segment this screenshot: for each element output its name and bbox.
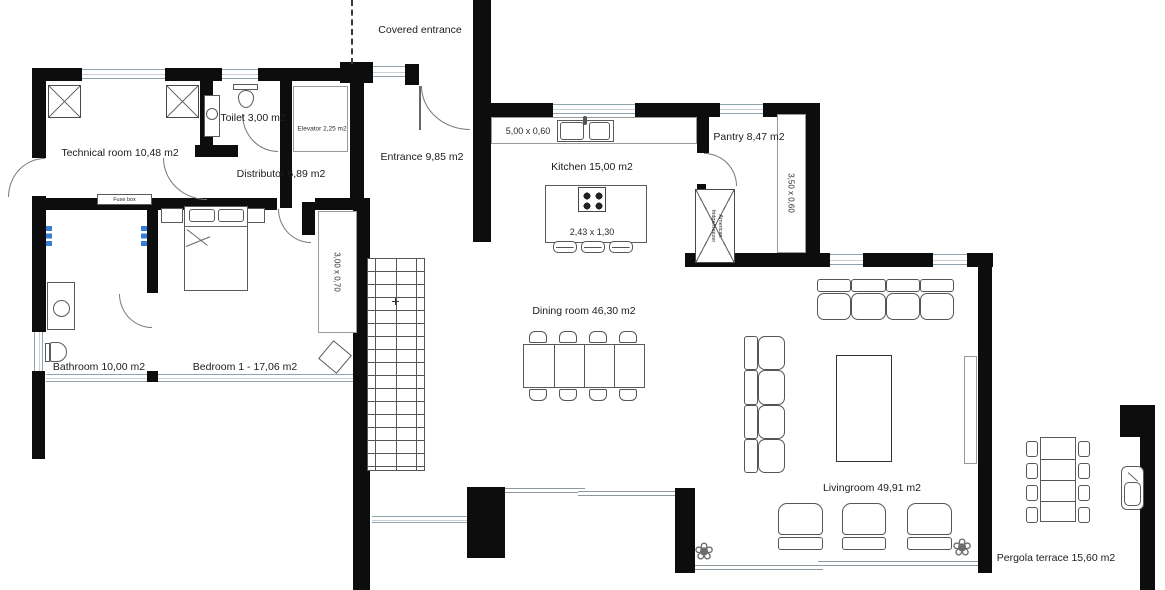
sofa-cushion: [744, 370, 758, 404]
wardrobe-dimension: 3,00 x 0,70: [333, 252, 342, 292]
pillow: [218, 209, 244, 222]
window: [830, 254, 863, 265]
window: [373, 66, 407, 77]
wall: [340, 62, 373, 83]
sofa-cushion: [817, 293, 851, 320]
toilet-icon: [238, 90, 254, 108]
door-arc: [119, 294, 152, 328]
sofa-cushion: [920, 279, 954, 292]
floor-plan: Fuse box 3,00 x 0,70 American fridge/fre…: [0, 0, 1165, 590]
nightstand: [245, 208, 265, 223]
sofa-cushion: [920, 293, 954, 320]
livingroom-label: Livingroom 49,91 m2: [823, 482, 921, 494]
pergola-chair: [1078, 485, 1090, 501]
sofa-cushion: [744, 439, 758, 473]
wall: [978, 253, 992, 573]
plant-icon: ❀: [694, 538, 714, 567]
pantry-label: Pantry 8,47 m2: [713, 131, 784, 143]
washing-machine-icon: [166, 85, 199, 118]
stove-icon: [578, 187, 606, 212]
dining-room-label: Dining room 46,30 m2: [532, 305, 635, 317]
wall: [491, 103, 553, 117]
fridge-label-line2: fridge/freezer: [709, 210, 716, 242]
pergola-chair: [1026, 463, 1038, 479]
window: [372, 516, 467, 523]
blanket-line: [185, 226, 247, 227]
sofa-cushion: [886, 279, 920, 292]
sofa-cushion: [758, 439, 785, 473]
sofa: [817, 279, 954, 320]
sink-bowl-icon: [53, 300, 70, 317]
wall: [806, 103, 820, 265]
dining-chair: [559, 389, 577, 401]
decor-square: [318, 340, 352, 374]
wall: [473, 0, 491, 242]
stairs-direction-mark: [395, 298, 396, 305]
elevator-label: Elevator 2,25 m2: [297, 126, 346, 133]
wall: [32, 196, 46, 332]
door-arc: [704, 153, 737, 186]
table-divider: [1041, 480, 1075, 481]
armchair-seat: [842, 537, 886, 550]
sink-basin-icon: [589, 122, 610, 140]
pergola-chair: [1078, 463, 1090, 479]
property-line: [351, 0, 353, 64]
sliding-door: [505, 488, 585, 493]
elevator-cab: [293, 86, 348, 152]
dining-chair: [589, 389, 607, 401]
wall: [863, 253, 933, 267]
pergola-chair: [1026, 507, 1038, 523]
window: [553, 104, 635, 114]
table-divider: [584, 345, 585, 387]
table-divider: [614, 345, 615, 387]
pantry-shelf-dimension: 3,50 x 0,60: [787, 173, 796, 213]
dining-chair: [589, 331, 607, 343]
fuse-box: Fuse box: [97, 194, 152, 205]
sink-bowl-icon: [206, 108, 218, 120]
dining-chair: [529, 331, 547, 343]
wall: [697, 103, 709, 153]
table-divider: [1041, 501, 1075, 502]
washing-machine-icon: [48, 85, 81, 118]
covered-entrance-label: Covered entrance: [378, 24, 461, 36]
pergola-chair: [1078, 507, 1090, 523]
window: [933, 254, 967, 265]
radiator: [46, 226, 52, 248]
pergola-chair: [1026, 441, 1038, 457]
pillow: [189, 209, 215, 222]
window: [34, 332, 43, 372]
wall: [147, 203, 158, 293]
entrance-label: Entrance 9,85 m2: [381, 151, 464, 163]
armchair-back: [778, 503, 823, 535]
wall: [315, 198, 353, 210]
dining-chair: [559, 331, 577, 343]
dining-chair: [619, 389, 637, 401]
wall: [32, 371, 45, 459]
armchair-seat: [778, 537, 823, 550]
window: [222, 69, 260, 79]
armchair: [907, 503, 952, 553]
fuse-box-label: Fuse box: [113, 197, 136, 203]
nightstand: [161, 208, 183, 223]
door-arc: [163, 158, 207, 200]
door-arc: [278, 209, 311, 243]
distributor-label: Distributor 6,89 m2: [237, 168, 326, 180]
sofa-cushion: [817, 279, 851, 292]
wall: [280, 80, 292, 208]
radiator: [141, 226, 147, 248]
stairs: [367, 258, 425, 471]
kitchen-counter-dimension: 5,00 x 0,60: [506, 126, 551, 136]
window: [158, 374, 353, 382]
toilet-label: Toilet 3,00 m2: [220, 112, 285, 124]
faucet-icon: [583, 116, 587, 125]
armchair-back: [842, 503, 886, 535]
door-arc: [421, 86, 470, 130]
sofa-cushion: [744, 336, 758, 370]
dining-table: [523, 344, 645, 388]
sofa-cushion: [744, 405, 758, 439]
sliding-door: [695, 565, 823, 570]
dining-chair: [529, 389, 547, 401]
kitchen-label: Kitchen 15,00 m2: [551, 161, 633, 173]
sofa: [744, 336, 785, 473]
fridge-label-line1: American: [716, 210, 723, 242]
tv-board: [964, 356, 977, 464]
pergola-terrace-label: Pergola terrace 15,60 m2: [997, 552, 1115, 564]
armchair-seat: [907, 537, 952, 550]
toilet-icon: [50, 342, 67, 362]
sink-basin-icon: [560, 122, 584, 140]
sofa-cushion: [851, 279, 885, 292]
armchair-back: [907, 503, 952, 535]
plant-icon: ❀: [952, 534, 972, 563]
wall: [32, 68, 46, 158]
pergola-table: [1040, 437, 1076, 522]
sliding-door: [578, 491, 675, 496]
sofa-seats: [758, 336, 785, 473]
sofa-cushion: [886, 293, 920, 320]
bbq-basin: [1124, 482, 1141, 506]
bathroom-label: Bathroom 10,00 m2: [53, 361, 145, 373]
dining-chair: [619, 331, 637, 343]
pergola-chair: [1078, 441, 1090, 457]
fridge-label: American fridge/freezer: [709, 210, 723, 242]
armchair: [842, 503, 886, 553]
bedroom-label: Bedroom 1 - 17,06 m2: [193, 361, 297, 373]
pergola-chair: [1026, 485, 1038, 501]
bar-stool: [581, 241, 605, 253]
door-arc: [8, 158, 45, 197]
technical-room-label: Technical room 10,48 m2: [61, 147, 178, 159]
sofa-cushion: [758, 336, 785, 370]
table-divider: [554, 345, 555, 387]
wall: [675, 488, 695, 573]
wall: [350, 62, 364, 208]
coffee-table: [836, 355, 892, 462]
wall: [165, 68, 222, 81]
window: [720, 104, 763, 114]
wall: [147, 371, 158, 382]
armchair: [778, 503, 823, 553]
wall: [405, 64, 419, 85]
sofa-cushion: [851, 293, 885, 320]
window: [46, 374, 147, 382]
sofa-cushion: [758, 370, 785, 404]
wall: [1140, 437, 1155, 590]
sofa-back: [744, 336, 758, 473]
bar-stool: [609, 241, 633, 253]
wall: [467, 487, 505, 558]
table-divider: [1041, 459, 1075, 460]
bar-stool: [553, 241, 577, 253]
wall: [1120, 405, 1155, 437]
window: [82, 69, 165, 79]
sofa-cushion: [758, 405, 785, 439]
kitchen-island-dimension: 2,43 x 1,30: [570, 227, 615, 237]
wall: [195, 145, 238, 157]
